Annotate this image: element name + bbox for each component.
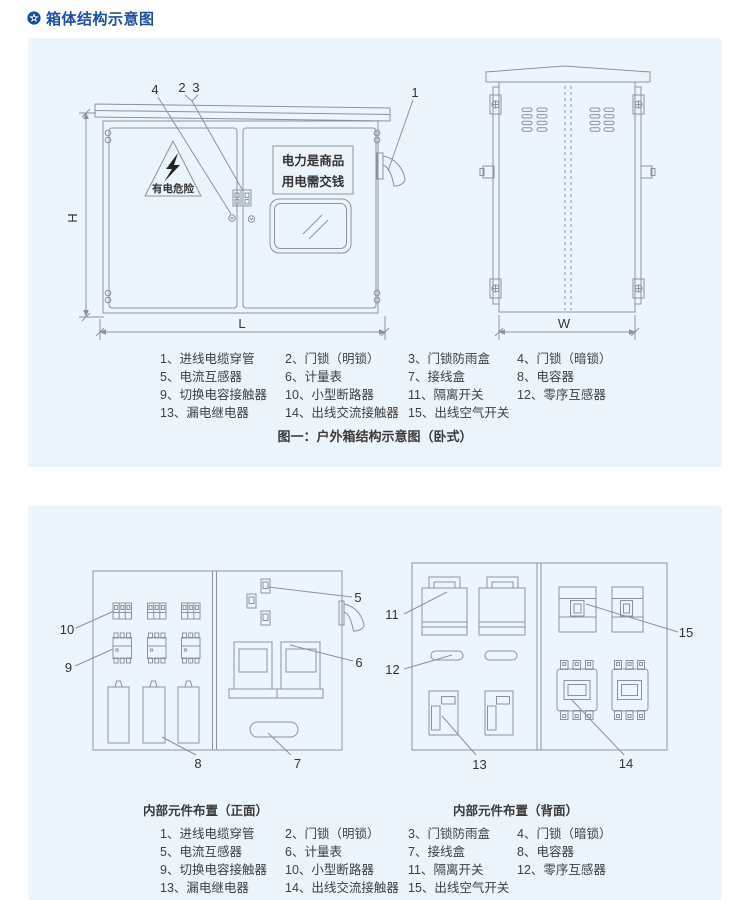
warning-triangle: 有电危险: [145, 141, 201, 196]
callout-10: 10: [60, 622, 74, 637]
side-brackets: [480, 166, 655, 178]
part-item: 7、接线盒: [408, 370, 517, 385]
part-item: 6、计量表: [285, 845, 408, 860]
part-item: 11、隔离开关: [408, 388, 517, 403]
part-item: 14、出线交流接触器: [285, 881, 408, 896]
door-latch: [233, 190, 251, 206]
isolator-switches-item11: [422, 577, 525, 635]
part-item: 13、漏电继电器: [160, 406, 285, 421]
sign-line1: 电力是商品: [282, 153, 345, 168]
figure1-caption: 图一：户外箱结构示意图（卧式）: [28, 426, 722, 445]
star-badge-icon: [27, 11, 41, 25]
part-item: 1、进线电缆穿管: [160, 352, 285, 367]
page: 箱体结构示意图 有电危险: [0, 0, 750, 900]
part-item: 15、出线空气开关: [408, 881, 517, 896]
cabinet-body: [103, 121, 378, 313]
vent-louvers: [522, 108, 614, 131]
part-item: 10、小型断路器: [285, 388, 408, 403]
cable-slots-item12: [431, 651, 517, 660]
parts-list-figure2: 1、进线电缆穿管 2、门锁（明锁） 3、门锁防雨盒 4、门锁（暗锁） 5、电流互…: [160, 827, 611, 896]
air-switches-item5: [247, 579, 270, 625]
back-layout-box: [412, 563, 667, 750]
callout-11: 11: [385, 607, 399, 622]
callout-5: 5: [354, 590, 361, 605]
part-item: 7、接线盒: [408, 845, 517, 860]
callout-14: 14: [619, 756, 633, 771]
part-item: 2、门锁（明锁）: [285, 827, 408, 842]
part-item: 8、电容器: [517, 370, 611, 385]
figure1-front-view: 有电危险 电力是商品 用电需交钱: [65, 80, 419, 340]
sign-line2: 用电需交钱: [281, 174, 345, 189]
back-layout: 11 12 13 14 15: [385, 563, 693, 772]
part-item: 15、出线空气开关: [408, 406, 517, 421]
door-left: [109, 128, 237, 308]
callout-12: 12: [385, 662, 399, 677]
side-body: [499, 82, 635, 312]
junction-slot-item7: [250, 722, 298, 737]
figure2-front-caption: 内部元件布置（正面）: [143, 800, 268, 819]
part-item: 9、切换电容接触器: [160, 388, 285, 403]
part-item: 8、电容器: [517, 845, 611, 860]
part-item: 2、门锁（明锁）: [285, 352, 408, 367]
dim-l-label: L: [238, 316, 245, 331]
mini-breakers-item10: [113, 603, 200, 619]
meters-item6: [229, 642, 323, 698]
figure1-drawing: 有电危险 电力是商品 用电需交钱: [0, 55, 750, 350]
hidden-locks: [229, 215, 255, 222]
front-layout: 10 9 8 7 5 6: [60, 571, 364, 771]
part-item: 4、门锁（暗锁）: [517, 827, 611, 842]
side-hinges: [490, 95, 644, 298]
parts-list-figure1: 1、进线电缆穿管 2、门锁（明锁） 3、门锁防雨盒 4、门锁（暗锁） 5、电流互…: [160, 352, 611, 421]
figure2-drawing: 10 9 8 7 5 6: [0, 555, 750, 805]
section-title: 箱体结构示意图: [46, 8, 155, 29]
callout-4: 4: [151, 82, 158, 97]
dim-w-label: W: [558, 316, 571, 331]
warning-text: 有电危险: [152, 182, 194, 195]
capacitors-item8: [108, 681, 199, 743]
part-item: 10、小型断路器: [285, 863, 408, 878]
mccb-breakers-item15: [559, 587, 643, 632]
dimension-width: W: [495, 315, 639, 340]
dimension-length: L: [96, 316, 389, 340]
part-item: 9、切换电容接触器: [160, 863, 285, 878]
cable-conduit-front: [339, 601, 364, 631]
callout-3: 3: [192, 80, 199, 95]
part-item: 5、电流互感器: [160, 845, 285, 860]
callout-15: 15: [679, 625, 693, 640]
callout-9: 9: [65, 660, 72, 675]
callout-1: 1: [411, 85, 418, 100]
roof: [95, 104, 390, 121]
callout-2: 2: [178, 80, 185, 95]
inspection-window: [270, 199, 351, 253]
junction-boxes-item13: [429, 691, 513, 735]
figure2-back-caption: 内部元件布置（背面）: [453, 800, 578, 819]
part-item: 11、隔离开关: [408, 863, 517, 878]
dimension-height: H: [65, 109, 104, 321]
part-item: 3、门锁防雨盒: [408, 827, 517, 842]
part-item: 3、门锁防雨盒: [408, 352, 517, 367]
callout-8: 8: [194, 756, 201, 771]
contactors-item9: [113, 633, 200, 663]
part-item: 5、电流互感器: [160, 370, 285, 385]
ac-contactors-item14: [557, 661, 648, 720]
cable-conduit: [377, 153, 405, 186]
callout-6: 6: [355, 655, 362, 670]
part-item: 1、进线电缆穿管: [160, 827, 285, 842]
part-item: 12、零序互感器: [517, 863, 611, 878]
part-item: 12、零序互感器: [517, 388, 611, 403]
part-item: 14、出线交流接触器: [285, 406, 408, 421]
callout-13: 13: [472, 757, 486, 772]
part-item: 4、门锁（暗锁）: [517, 352, 611, 367]
sign-plate: 电力是商品 用电需交钱: [273, 146, 353, 194]
part-item: 6、计量表: [285, 370, 408, 385]
dim-h-label: H: [65, 213, 80, 222]
callout-7: 7: [294, 756, 301, 771]
figure1-side-view: W: [480, 66, 655, 340]
section-header: 箱体结构示意图: [27, 8, 155, 28]
part-item: 13、漏电继电器: [160, 881, 285, 896]
side-roof: [486, 66, 650, 82]
